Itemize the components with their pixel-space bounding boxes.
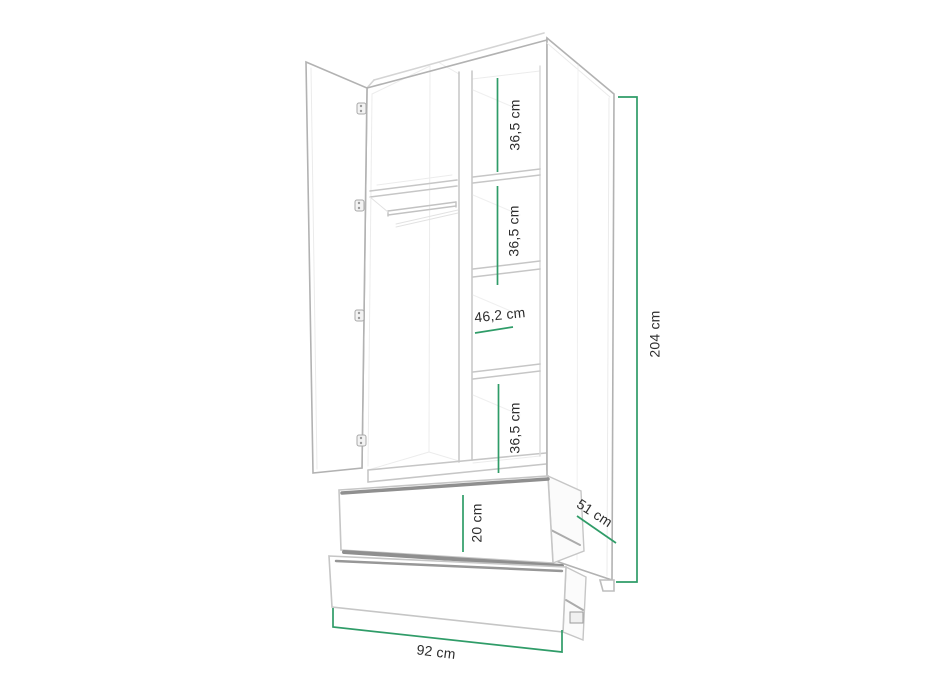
drawer-lower [329, 552, 586, 640]
runner-bracket [570, 612, 583, 623]
dimension-label-shelf2: 36,5 cm [506, 205, 522, 256]
diagram-canvas: 36,5 cm 36,5 cm 46,2 cm 36,5 cm 20 cm 51… [0, 0, 931, 698]
wardrobe-diagram: 36,5 cm 36,5 cm 46,2 cm 36,5 cm 20 cm 51… [0, 0, 931, 698]
right-foot [600, 580, 614, 591]
dimension-line-total-height [616, 97, 637, 582]
dimension-label-drawer-height: 20 cm [469, 503, 485, 542]
dimension-label-total-height: 204 cm [647, 310, 663, 357]
dimension-label-shelf4: 36,5 cm [507, 402, 523, 453]
drawer-upper [339, 476, 584, 563]
left-door [306, 62, 367, 473]
hanging-rail [370, 197, 458, 227]
dimension-line-niche-width [475, 327, 513, 333]
dimension-label-total-width: 92 cm [416, 641, 457, 662]
dimension-label-niche-width: 46,2 cm [474, 304, 527, 325]
dimension-label-shelf1: 36,5 cm [507, 99, 523, 150]
